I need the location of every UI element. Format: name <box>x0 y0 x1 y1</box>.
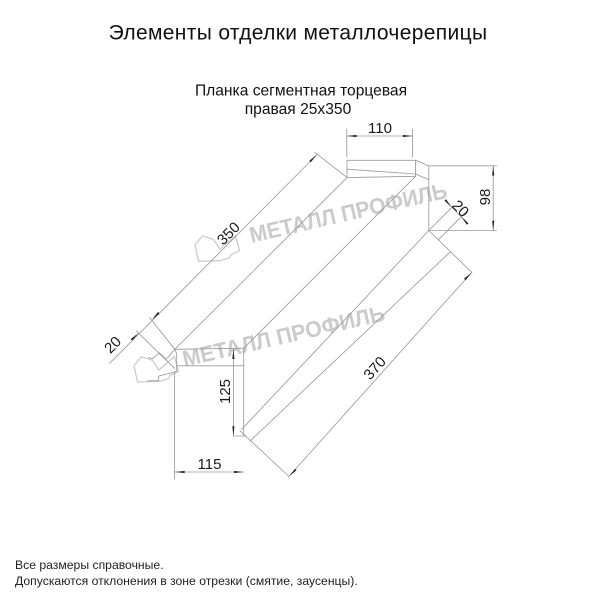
svg-text:Допускаются отклонения в зоне: Допускаются отклонения в зоне отрезки (с… <box>15 574 358 588</box>
svg-text:правая 25x350: правая 25x350 <box>245 101 352 118</box>
svg-text:Элементы отделки металлочерепи: Элементы отделки металлочерепицы <box>109 21 488 44</box>
svg-text:Планка сегментная торцевая: Планка сегментная торцевая <box>195 83 407 100</box>
svg-text:125: 125 <box>217 379 234 404</box>
svg-text:115: 115 <box>198 456 222 473</box>
svg-text:Все размеры справочные.: Все размеры справочные. <box>15 558 164 572</box>
svg-text:110: 110 <box>368 120 392 137</box>
svg-text:98: 98 <box>477 189 494 206</box>
